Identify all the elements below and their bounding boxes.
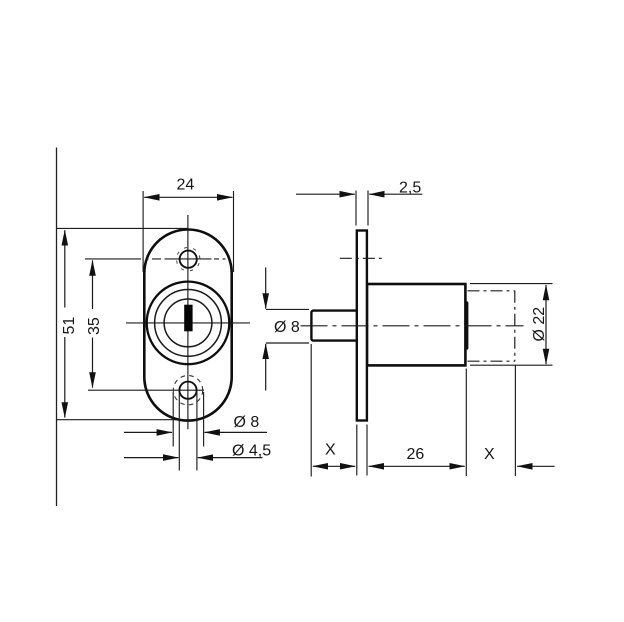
svg-text:X: X	[325, 442, 336, 459]
svg-text:X: X	[484, 446, 495, 463]
svg-text:24: 24	[177, 177, 195, 194]
svg-text:Ø 8: Ø 8	[234, 414, 260, 431]
svg-text:Ø 22: Ø 22	[531, 307, 548, 342]
svg-text:Ø 4,5: Ø 4,5	[232, 443, 271, 460]
svg-text:26: 26	[407, 446, 425, 463]
svg-text:51: 51	[61, 317, 78, 335]
svg-text:2,5: 2,5	[399, 180, 421, 197]
svg-text:Ø 8: Ø 8	[274, 319, 300, 336]
svg-text:35: 35	[86, 317, 103, 335]
